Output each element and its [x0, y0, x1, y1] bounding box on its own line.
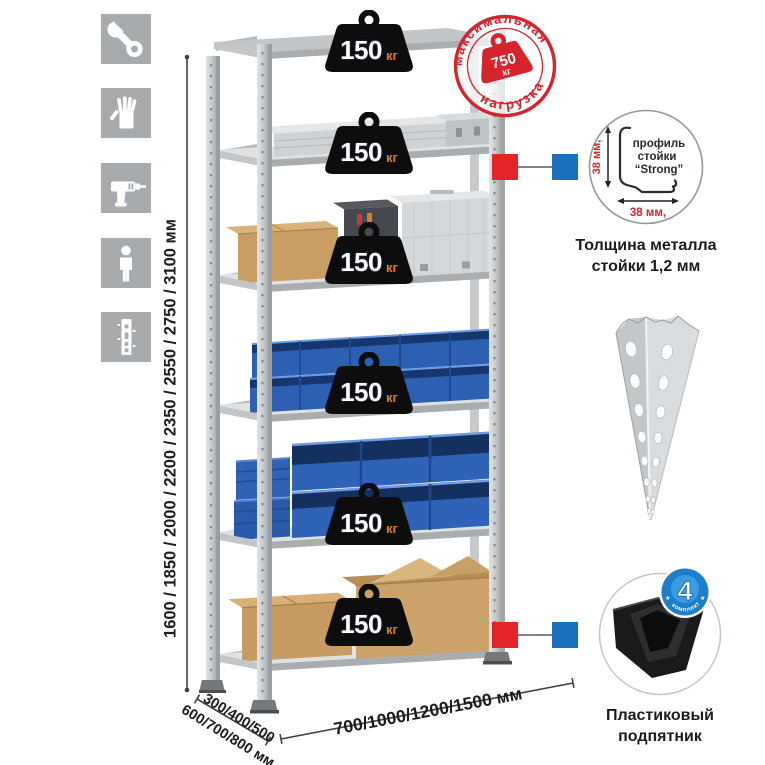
kit-star-left: ★	[665, 595, 670, 602]
shelf-load-badge-2: 150кг	[325, 112, 413, 178]
foot-caption: Пластиковый подпятник	[580, 706, 740, 748]
height-dimension-label: 1600 / 1850 / 2000 / 2200 / 2350 / 2550 …	[162, 149, 181, 709]
red-marker-top	[492, 154, 518, 180]
shelf-load-badge-6: 150кг	[325, 584, 413, 650]
person-tile	[101, 238, 151, 288]
kit-star-right: ★	[700, 595, 705, 602]
profile-detail-callout: 38 мм, 38 мм, профиль стойки “Strong”	[586, 107, 708, 229]
blue-marker-bottom	[552, 622, 578, 648]
load-unit: кг	[386, 622, 398, 637]
profile-label-line1: профиль	[633, 138, 686, 150]
load-unit: кг	[386, 48, 398, 63]
profile-label-line2: стойки	[638, 151, 677, 163]
drill-tile	[101, 163, 151, 213]
kit-count: 4	[677, 576, 692, 606]
red-marker-bottom	[492, 622, 518, 648]
load-value: 150	[340, 247, 382, 278]
profile-caption: Толщина металла стойки 1,2 мм	[561, 236, 731, 278]
profile-label-line3: “Strong”	[635, 164, 684, 176]
load-value: 150	[340, 609, 382, 640]
load-value: 150	[340, 377, 382, 408]
profile-width-dim: 38 мм,	[630, 207, 666, 219]
load-unit: кг	[386, 260, 398, 275]
load-value: 150	[340, 35, 382, 66]
profile-callout-connector	[492, 154, 578, 180]
load-value: 150	[340, 137, 382, 168]
load-value: 150	[340, 508, 382, 539]
shelf-upright-icon	[101, 312, 151, 362]
wrench-icon	[101, 14, 151, 64]
upright-tile	[101, 312, 151, 362]
shelf-load-badge-3: 150кг	[325, 222, 413, 288]
foot-callout-connector	[492, 622, 578, 648]
drill-icon	[101, 163, 151, 213]
shelf-load-badge-5: 150кг	[325, 483, 413, 549]
shelf-load-badge-4: 150кг	[325, 352, 413, 418]
cardboard-box	[226, 221, 338, 284]
upright-post-image	[616, 316, 699, 520]
load-unit: кг	[386, 390, 398, 405]
plastic-foot-callout: 4 в комплекте ★ ★	[596, 558, 736, 708]
product-infographic: 1600 / 1850 / 2000 / 2200 / 2350 / 2550 …	[0, 0, 765, 765]
wrench-tile	[101, 14, 151, 64]
gloves-tile	[101, 88, 151, 138]
person-icon	[101, 238, 151, 288]
load-unit: кг	[386, 521, 398, 536]
height-dimension-line	[185, 55, 190, 693]
shelf-load-badge-1: 150кг	[325, 10, 413, 76]
blue-marker-top	[552, 154, 578, 180]
profile-height-dim: 38 мм,	[591, 140, 603, 175]
gloves-icon	[101, 88, 151, 138]
side-beams	[216, 36, 257, 663]
load-unit: кг	[386, 150, 398, 165]
